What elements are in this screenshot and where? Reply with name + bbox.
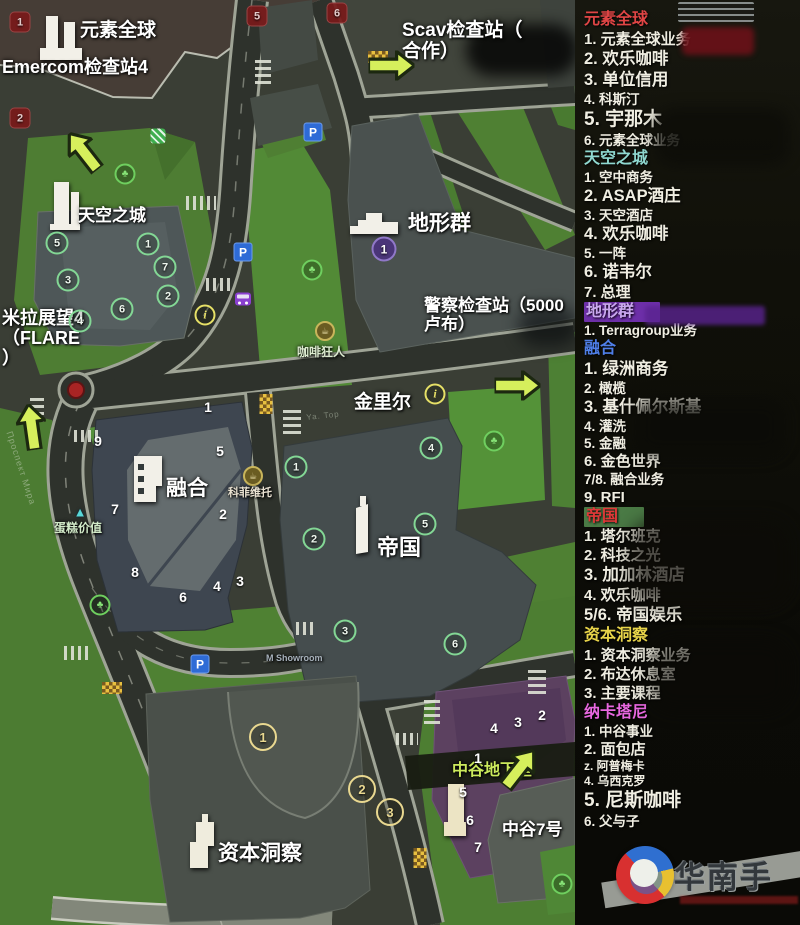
map-marker-white-5: 5 bbox=[216, 443, 224, 459]
map-marker-red-2: 2 bbox=[10, 108, 31, 129]
ziben-label: 资本洞察 bbox=[218, 842, 302, 866]
crosswalk bbox=[64, 646, 92, 660]
section-title-ronghe: 融合 bbox=[584, 339, 796, 359]
map-marker-green-4: 4 bbox=[420, 437, 443, 460]
censor-blob bbox=[630, 520, 790, 605]
emercom-checkpoint-label: Emercom检查站4 bbox=[2, 57, 148, 77]
map-marker-white-1: 1 bbox=[204, 399, 212, 415]
map-marker-white-9: 9 bbox=[94, 433, 102, 449]
dangao-jiazhi-label: 蛋糕价值 bbox=[54, 522, 102, 535]
watermark: 华南手 bbox=[608, 838, 800, 925]
map-marker-green-7: 7 bbox=[154, 256, 177, 279]
legend-section-nakatani: 纳卡塔尼1. 中谷事业2. 面包店z. 阿普梅卡4. 乌西克罗5. 尼斯咖啡6.… bbox=[584, 703, 796, 830]
direction-arrow-icon bbox=[364, 51, 415, 81]
checker-icon bbox=[414, 848, 427, 868]
ronghe-label: 融合 bbox=[166, 477, 208, 501]
legend-item: 5. 一阵 bbox=[584, 245, 796, 262]
legend-item: 1. 中谷事业 bbox=[584, 723, 796, 740]
legend-item: 4. 乌西克罗 bbox=[584, 774, 796, 789]
dixing-building-icon bbox=[348, 206, 400, 243]
checker-icon bbox=[260, 394, 273, 414]
police-checkpoint-label: 警察检查站（5000 卢布） bbox=[424, 296, 564, 334]
dixing-label: 地形群 bbox=[408, 212, 471, 236]
map-marker-green-1: 1 bbox=[285, 456, 308, 479]
censor-blob bbox=[678, 2, 754, 22]
legend-item: 6. 诺韦尔 bbox=[584, 262, 796, 283]
screenshot-root: 元素全球Emercom检查站4Scav检查站（ 合作）天空之城米拉展望4 （FL… bbox=[0, 0, 800, 925]
map-marker-white-6: 6 bbox=[466, 812, 474, 828]
crosswalk bbox=[255, 56, 271, 84]
scav-checkpoint-label: Scav检查站（ 合作） bbox=[402, 20, 522, 63]
map-marker-green-4: 4 bbox=[69, 310, 92, 333]
map-marker-yellow-3: 3 bbox=[376, 798, 404, 826]
map-marker-purple-1: 1 bbox=[372, 237, 397, 262]
parking-icon: P bbox=[234, 243, 253, 262]
tiankong-building-icon bbox=[46, 178, 82, 237]
legend-section-tiankongzhicheng: 天空之城1. 空中商务2. ASAP酒庄3. 天空酒店4. 欢乐咖啡5. 一阵6… bbox=[584, 149, 796, 302]
tree-icon: ♣ bbox=[302, 260, 323, 281]
direction-arrow-icon bbox=[490, 371, 541, 401]
legend-item: 7/8. 融合业务 bbox=[584, 471, 796, 488]
map-marker-white-1: 1 bbox=[474, 750, 482, 766]
crosswalk bbox=[296, 622, 316, 635]
censor-blob bbox=[655, 108, 790, 166]
legend-item: 1. 绿洲商务 bbox=[584, 359, 796, 380]
coffee-icon: ☕ bbox=[315, 321, 335, 341]
censor-blob bbox=[682, 27, 754, 55]
map-marker-red-6: 6 bbox=[327, 3, 348, 24]
map-marker-white-5: 5 bbox=[459, 784, 467, 800]
crosswalk bbox=[424, 698, 440, 724]
watermark-text: 华南手 bbox=[674, 852, 773, 897]
tree-icon: ♣ bbox=[115, 164, 136, 185]
parking-icon: P bbox=[304, 123, 323, 142]
legend-item: 5. 尼斯咖啡 bbox=[584, 789, 796, 813]
tree-icon: ♣ bbox=[484, 431, 505, 452]
legend-item: 2. 橄榄 bbox=[584, 380, 796, 397]
map-marker-white-4: 4 bbox=[213, 578, 221, 594]
checker-icon bbox=[102, 682, 122, 694]
map-marker-red-5: 5 bbox=[247, 6, 268, 27]
legend-item: 1. 空中商务 bbox=[584, 169, 796, 186]
map-marker-yellow-2: 2 bbox=[348, 775, 376, 803]
esc-icon bbox=[151, 129, 166, 144]
info-icon: i bbox=[425, 384, 446, 405]
legend-item: 7. 总理 bbox=[584, 283, 796, 302]
map-marker-white-7: 7 bbox=[111, 501, 119, 517]
map-marker-green-6: 6 bbox=[111, 298, 134, 321]
map-marker-white-2: 2 bbox=[538, 707, 546, 723]
map-marker-white-4: 4 bbox=[490, 720, 498, 736]
zhonggu-7-label: 中谷7号 bbox=[502, 820, 562, 839]
map-marker-white-6: 6 bbox=[179, 589, 187, 605]
map-marker-white-3: 3 bbox=[514, 714, 522, 730]
map-marker-green-5: 5 bbox=[46, 232, 69, 255]
watermark-red-strip bbox=[680, 896, 798, 904]
tree-icon: ♣ bbox=[552, 874, 573, 895]
crosswalk bbox=[283, 408, 301, 434]
map-marker-green-5: 5 bbox=[414, 513, 437, 536]
map-marker-green-2: 2 bbox=[157, 285, 180, 308]
tree-icon: ♣ bbox=[90, 595, 111, 616]
crosswalk bbox=[206, 278, 234, 291]
info-icon: i bbox=[195, 305, 216, 326]
legend-item: 9. RFI bbox=[584, 488, 796, 507]
jinlier-label: 金里尔 bbox=[354, 392, 411, 413]
map-marker-green-3: 3 bbox=[57, 269, 80, 292]
censor-blob bbox=[645, 306, 765, 325]
map-marker-white-3: 3 bbox=[236, 573, 244, 589]
watermark-logo-icon bbox=[616, 846, 674, 904]
map-marker-yellow-1: 1 bbox=[249, 723, 277, 751]
tiankong-label: 天空之城 bbox=[78, 206, 146, 225]
crosswalk bbox=[396, 733, 418, 745]
map-marker-white-7: 7 bbox=[474, 839, 482, 855]
yuansu-label: 元素全球 bbox=[80, 20, 156, 41]
legend-item: 4. 科斯汀 bbox=[584, 91, 796, 108]
legend-item: z. 阿普梅卡 bbox=[584, 759, 796, 774]
map-marker-white-8: 8 bbox=[131, 564, 139, 580]
legend-item: 3. 天空酒店 bbox=[584, 207, 796, 224]
map-marker-green-3: 3 bbox=[334, 620, 357, 643]
bus-icon bbox=[235, 293, 251, 306]
legend-item: 3. 单位信用 bbox=[584, 70, 796, 91]
diguo-label: 帝国 bbox=[377, 536, 421, 561]
legend-item: 2. ASAP酒庄 bbox=[584, 186, 796, 207]
map-marker-green-1: 1 bbox=[137, 233, 160, 256]
parking-icon: P bbox=[191, 655, 210, 674]
censor-blob bbox=[650, 640, 790, 710]
censor-blob bbox=[635, 398, 785, 456]
cake-icon: ▲ bbox=[74, 505, 87, 520]
legend-item: 5/6. 帝国娱乐 bbox=[584, 605, 796, 626]
map-marker-white-2: 2 bbox=[219, 506, 227, 522]
coffee-icon: ☕ bbox=[243, 466, 263, 486]
m-showroom-label: M Showroom bbox=[266, 653, 323, 663]
kafei-kuangren-label: 咖啡狂人 bbox=[297, 346, 345, 359]
kefei-weituo-label: 科菲维托 bbox=[228, 487, 272, 499]
map-marker-green-2: 2 bbox=[303, 528, 326, 551]
legend-item: 2. 面包店 bbox=[584, 740, 796, 759]
diguo-building-icon bbox=[352, 496, 374, 565]
map-marker-red-1: 1 bbox=[10, 12, 31, 33]
legend-item: 6. 父与子 bbox=[584, 813, 796, 830]
crosswalk bbox=[528, 670, 546, 694]
map-marker-green-6: 6 bbox=[444, 633, 467, 656]
ronghe-building-icon bbox=[130, 448, 164, 511]
legend-item: 4. 欢乐咖啡 bbox=[584, 224, 796, 245]
section-title-diguo: 帝国 bbox=[584, 507, 644, 527]
crosswalk bbox=[186, 196, 216, 210]
